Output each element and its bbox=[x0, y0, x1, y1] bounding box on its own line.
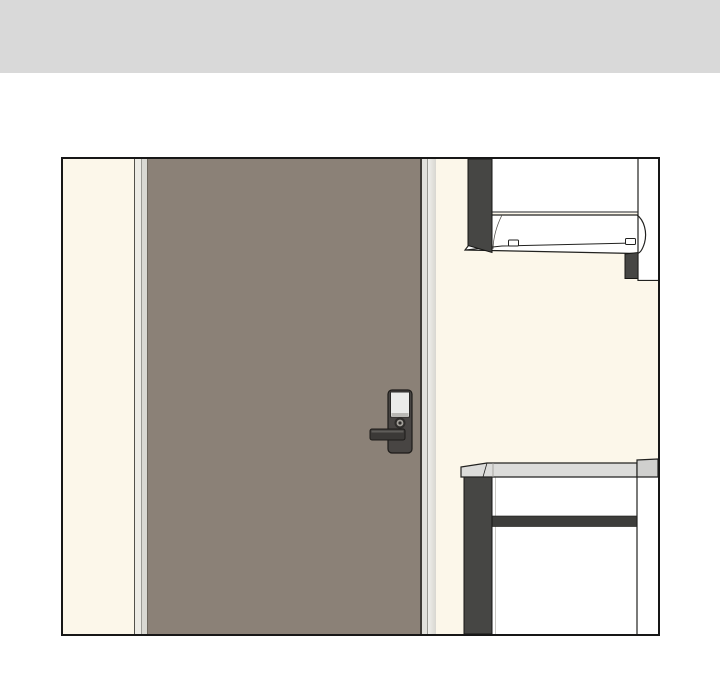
webtoon-page bbox=[0, 0, 720, 700]
thumbturn-slot bbox=[398, 421, 401, 424]
base-cabinet-right-side bbox=[637, 477, 658, 634]
kitchen-counter bbox=[455, 455, 658, 634]
door-lock bbox=[369, 386, 417, 458]
wall-cabinet bbox=[460, 159, 658, 281]
cabinet-support-block bbox=[625, 253, 638, 279]
comic-panel bbox=[61, 157, 660, 636]
cabinet-upper-face bbox=[492, 159, 638, 213]
drawer-gap-band bbox=[492, 516, 637, 527]
lever-highlight bbox=[372, 431, 404, 433]
hood-latch-right bbox=[626, 239, 636, 245]
lock-keypad-shade bbox=[392, 413, 409, 417]
lock-lever-handle bbox=[370, 429, 405, 440]
header-gray-bar bbox=[0, 0, 720, 73]
cabinet-side-pillar bbox=[468, 159, 492, 253]
door-frame-right-outer-strip bbox=[428, 159, 436, 634]
lock-thumbturn bbox=[395, 418, 406, 429]
door-frame-left bbox=[134, 159, 147, 634]
countertop bbox=[461, 463, 637, 477]
counter-side-pillar bbox=[464, 477, 492, 634]
hood-latch-left bbox=[509, 240, 519, 246]
door-frame-right bbox=[422, 159, 436, 634]
countertop-right-section bbox=[637, 459, 658, 477]
base-cabinet-face bbox=[492, 477, 637, 634]
